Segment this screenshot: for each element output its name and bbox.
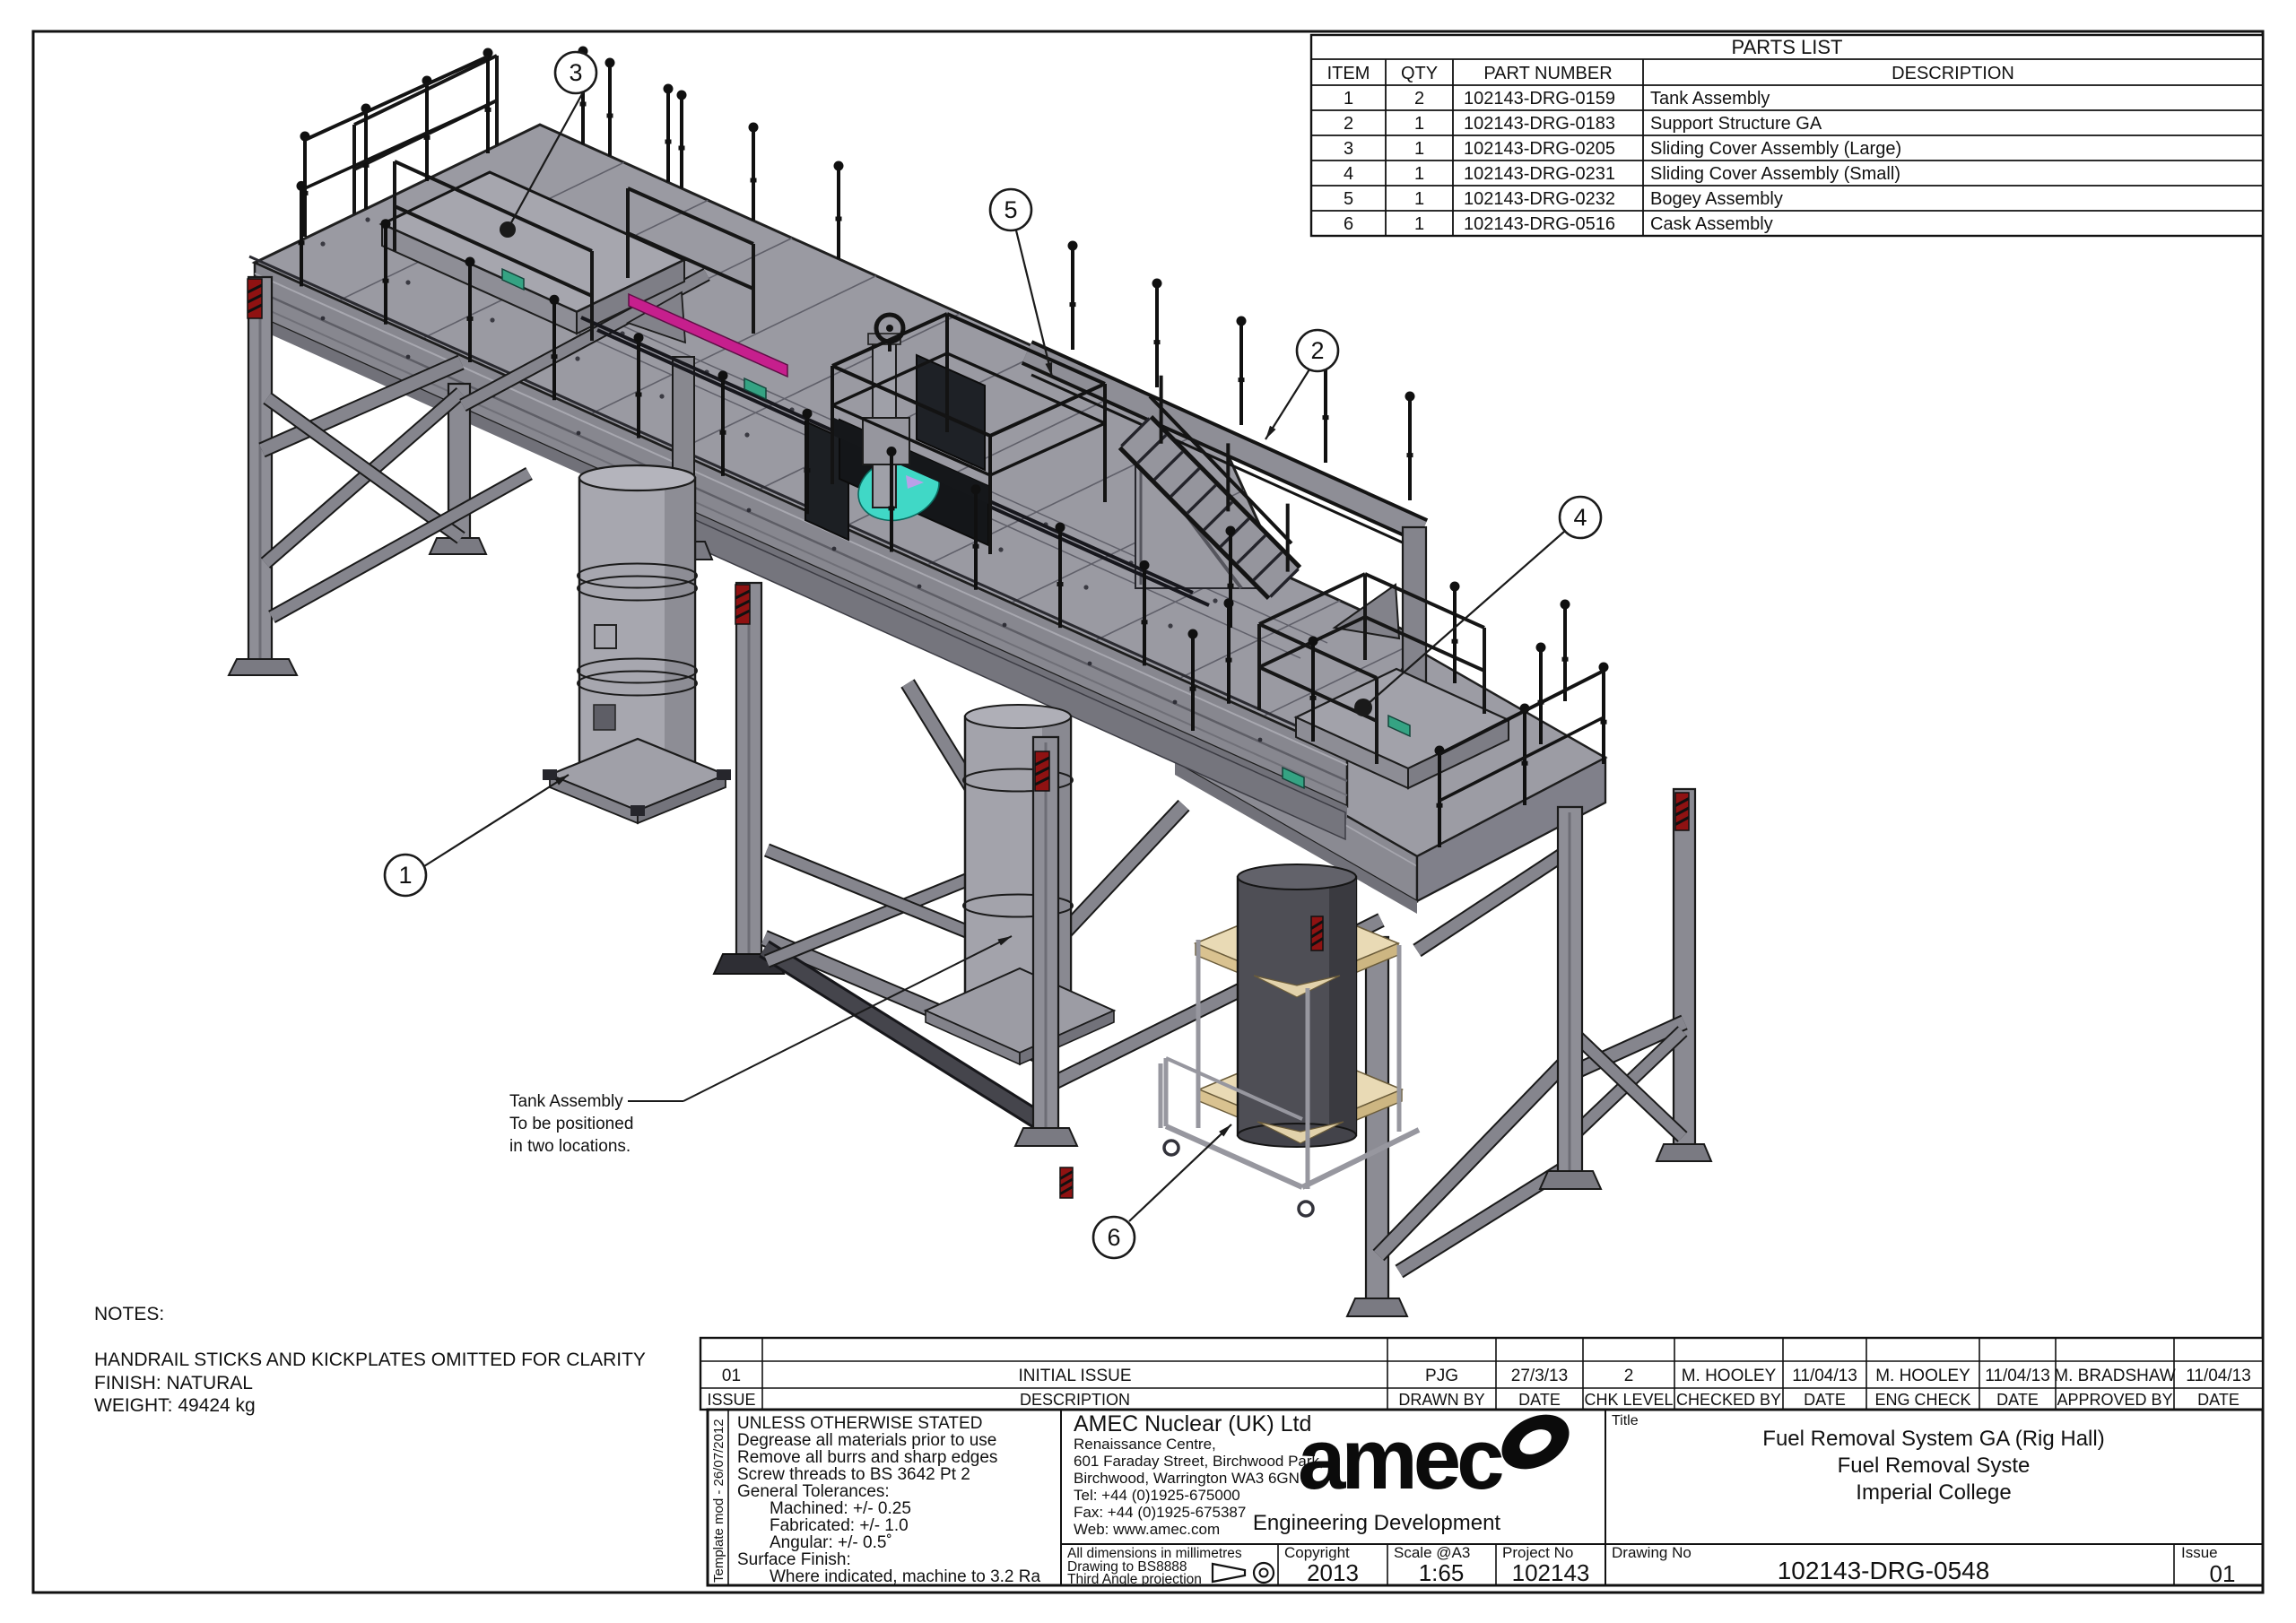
svg-text:Sliding Cover Assembly (Small): Sliding Cover Assembly (Small): [1650, 164, 1900, 184]
svg-text:Issue: Issue: [2181, 1544, 2218, 1561]
svg-text:Tank Assembly: Tank Assembly: [1650, 89, 1770, 108]
svg-text:DESCRIPTION: DESCRIPTION: [1020, 1391, 1130, 1409]
svg-text:Surface Finish:: Surface Finish:: [737, 1550, 851, 1569]
svg-text:Third Angle projection: Third Angle projection: [1067, 1572, 1202, 1587]
svg-text:FINISH: NATURAL: FINISH: NATURAL: [94, 1373, 253, 1393]
svg-text:1: 1: [1414, 214, 1424, 234]
svg-text:102143-DRG-0516: 102143-DRG-0516: [1464, 214, 1615, 234]
svg-text:ITEM: ITEM: [1327, 64, 1370, 83]
svg-text:Birchwood, Warrington WA3 6GN: Birchwood, Warrington WA3 6GN: [1074, 1470, 1300, 1487]
svg-text:PART NUMBER: PART NUMBER: [1483, 64, 1612, 83]
svg-text:QTY: QTY: [1401, 64, 1438, 83]
svg-text:102143-DRG-0183: 102143-DRG-0183: [1464, 114, 1615, 134]
svg-text:01: 01: [2210, 1560, 2236, 1587]
svg-text:Cask Assembly: Cask Assembly: [1650, 214, 1773, 234]
svg-text:2: 2: [1414, 89, 1424, 108]
svg-text:1: 1: [1414, 139, 1424, 159]
svg-text:Angular: +/- 0.5˚: Angular: +/- 0.5˚: [770, 1533, 892, 1552]
svg-text:Fabricated: +/- 1.0: Fabricated: +/- 1.0: [770, 1516, 909, 1535]
svg-text:NOTES:: NOTES:: [94, 1304, 164, 1324]
svg-text:M. BRADSHAW: M. BRADSHAW: [2054, 1367, 2176, 1385]
svg-text:2013: 2013: [1307, 1559, 1359, 1586]
svg-text:Machined: +/- 0.25: Machined: +/- 0.25: [770, 1499, 911, 1518]
svg-text:Remove all burrs and sharp edg: Remove all burrs and sharp edges: [737, 1448, 997, 1467]
svg-text:1: 1: [1414, 164, 1424, 184]
svg-text:102143-DRG-0159: 102143-DRG-0159: [1464, 89, 1615, 108]
svg-text:M. HOOLEY: M. HOOLEY: [1875, 1367, 1970, 1385]
svg-text:Degrease all materials prior t: Degrease all materials prior to use: [737, 1431, 996, 1450]
svg-text:11/04/13: 11/04/13: [1985, 1367, 2050, 1385]
svg-text:11/04/13: 11/04/13: [1792, 1367, 1857, 1385]
svg-text:UNLESS OTHERWISE STATED: UNLESS OTHERWISE STATED: [737, 1414, 982, 1433]
svg-text:Template mod - 26/07/2012: Template mod - 26/07/2012: [711, 1419, 726, 1583]
svg-text:To be positioned: To be positioned: [509, 1115, 633, 1133]
svg-text:Fuel Removal System GA (Rig Ha: Fuel Removal System GA (Rig Hall): [1762, 1427, 2104, 1451]
svg-text:1: 1: [1414, 189, 1424, 209]
svg-text:PARTS LIST: PARTS LIST: [1732, 36, 1843, 58]
svg-text:11/04/13: 11/04/13: [2186, 1367, 2251, 1385]
svg-text:M. HOOLEY: M. HOOLEY: [1682, 1367, 1777, 1385]
svg-text:102143-DRG-0232: 102143-DRG-0232: [1464, 189, 1615, 209]
svg-text:Bogey Assembly: Bogey Assembly: [1650, 189, 1783, 209]
svg-text:6: 6: [1107, 1224, 1120, 1251]
svg-text:102143: 102143: [1512, 1559, 1590, 1586]
svg-text:DATE: DATE: [1518, 1391, 1561, 1409]
svg-text:ENG CHECK: ENG CHECK: [1874, 1391, 1970, 1409]
svg-text:HANDRAIL STICKS AND KICKPLATES: HANDRAIL STICKS AND KICKPLATES OMITTED F…: [94, 1350, 646, 1370]
svg-text:APPROVED BY: APPROVED BY: [2057, 1391, 2172, 1409]
svg-text:DESCRIPTION: DESCRIPTION: [1892, 64, 2014, 83]
svg-text:INITIAL ISSUE: INITIAL ISSUE: [1019, 1367, 1132, 1385]
svg-text:CHK LEVEL: CHK LEVEL: [1584, 1391, 1673, 1409]
svg-text:3: 3: [1344, 139, 1353, 159]
svg-text:1: 1: [1344, 89, 1353, 108]
svg-text:2: 2: [1624, 1367, 1634, 1385]
svg-text:5: 5: [1344, 189, 1353, 209]
svg-text:102143-DRG-0231: 102143-DRG-0231: [1464, 164, 1615, 184]
svg-text:102143-DRG-0548: 102143-DRG-0548: [1778, 1557, 1990, 1584]
svg-text:Web: www.amec.com: Web: www.amec.com: [1074, 1521, 1220, 1538]
svg-text:DATE: DATE: [1996, 1391, 2039, 1409]
svg-text:Fuel Removal Syste: Fuel Removal Syste: [1838, 1454, 2031, 1478]
svg-text:Fax: +44 (0)1925-675387: Fax: +44 (0)1925-675387: [1074, 1504, 1246, 1521]
svg-text:3: 3: [569, 59, 582, 86]
svg-text:Drawing No: Drawing No: [1612, 1544, 1692, 1561]
svg-text:WEIGHT: 49424 kg: WEIGHT: 49424 kg: [94, 1395, 256, 1416]
svg-text:1: 1: [398, 862, 412, 889]
svg-text:Imperial College: Imperial College: [1856, 1480, 2011, 1505]
svg-text:ISSUE: ISSUE: [707, 1391, 755, 1409]
svg-text:CHECKED BY: CHECKED BY: [1676, 1391, 1781, 1409]
svg-text:Screw threads to BS 3642 Pt 2: Screw threads to BS 3642 Pt 2: [737, 1465, 970, 1484]
svg-text:DRAWN BY: DRAWN BY: [1398, 1391, 1484, 1409]
svg-text:6: 6: [1344, 214, 1353, 234]
svg-text:in two locations.: in two locations.: [509, 1137, 631, 1156]
svg-text:27/3/13: 27/3/13: [1511, 1367, 1568, 1385]
svg-text:Where indicated, machine to 3.: Where indicated, machine to 3.2 Ra: [770, 1567, 1040, 1586]
svg-text:Engineering Development: Engineering Development: [1253, 1511, 1501, 1535]
svg-text:General Tolerances:: General Tolerances:: [737, 1482, 890, 1501]
svg-text:AMEC Nuclear (UK) Ltd: AMEC Nuclear (UK) Ltd: [1074, 1411, 1311, 1436]
svg-text:01: 01: [722, 1367, 741, 1385]
svg-text:Tank Assembly: Tank Assembly: [509, 1092, 623, 1111]
svg-text:Renaissance Centre,: Renaissance Centre,: [1074, 1436, 1216, 1453]
svg-text:amec: amec: [1298, 1411, 1502, 1507]
svg-text:DATE: DATE: [1804, 1391, 1846, 1409]
svg-text:4: 4: [1344, 164, 1353, 184]
svg-text:5: 5: [1004, 196, 1017, 223]
svg-text:601 Faraday Street, Birchwood: 601 Faraday Street, Birchwood Park,: [1074, 1453, 1324, 1470]
svg-text:1:65: 1:65: [1419, 1559, 1465, 1586]
svg-text:PJG: PJG: [1425, 1367, 1458, 1385]
svg-text:1: 1: [1414, 114, 1424, 134]
svg-text:Title: Title: [1612, 1413, 1639, 1428]
svg-text:4: 4: [1573, 504, 1587, 531]
svg-text:Tel: +44 (0)1925-675000: Tel: +44 (0)1925-675000: [1074, 1487, 1240, 1504]
svg-text:2: 2: [1344, 114, 1353, 134]
svg-text:DATE: DATE: [2197, 1391, 2239, 1409]
svg-text:102143-DRG-0205: 102143-DRG-0205: [1464, 139, 1615, 159]
svg-text:2: 2: [1310, 337, 1324, 364]
svg-text:Sliding Cover Assembly (Large): Sliding Cover Assembly (Large): [1650, 139, 1901, 159]
svg-text:Support Structure GA: Support Structure GA: [1650, 114, 1822, 134]
